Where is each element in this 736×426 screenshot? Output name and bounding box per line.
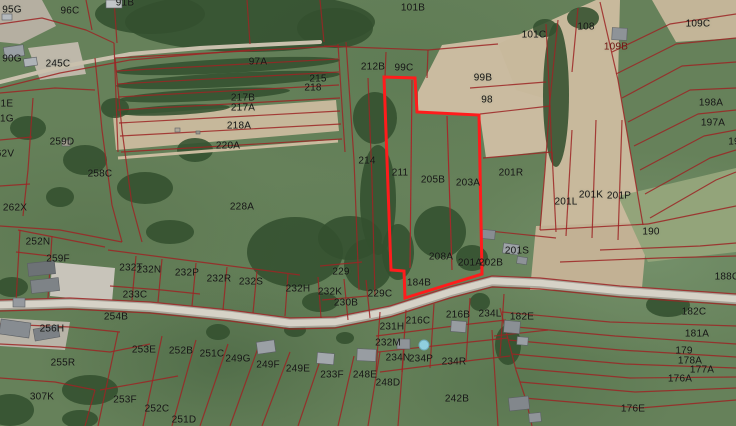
tree-clump <box>63 145 107 175</box>
tree-clump <box>318 216 382 260</box>
parcel-boundary-line <box>223 267 227 310</box>
parcel-boundary-line <box>0 344 150 352</box>
parcel-boundary-line <box>628 88 736 122</box>
building <box>30 278 59 294</box>
parcel-boundary-line <box>634 110 736 146</box>
swimming-pool <box>419 340 429 350</box>
parcel-boundary-line <box>262 352 290 426</box>
building <box>517 256 528 264</box>
parcel-boundary-line <box>512 354 736 368</box>
parcel-boundary-line <box>172 340 196 426</box>
parcel-boundary-line <box>508 340 736 357</box>
tree-clump <box>101 98 129 118</box>
parcel-boundary-line <box>86 0 92 30</box>
building <box>106 0 122 8</box>
parcel-boundary-line <box>516 368 736 378</box>
parcel-boundary-line <box>230 348 258 426</box>
parcel-boundary-line <box>132 256 136 300</box>
parcel-boundary-line <box>192 263 196 306</box>
parcel-boundary-line <box>376 320 506 336</box>
tree-clump <box>62 410 98 426</box>
parcel-boundary-line <box>298 355 322 426</box>
field-patch <box>0 0 56 44</box>
building <box>3 45 24 59</box>
tree-clump <box>0 277 28 297</box>
parcel-boundary-line <box>0 184 30 186</box>
building <box>357 349 377 362</box>
tree-clump <box>470 293 490 311</box>
parcel-boundary-line <box>502 312 736 326</box>
building <box>196 131 200 134</box>
tree-clump <box>117 172 173 204</box>
field-patch <box>50 262 115 302</box>
parcel-boundary-line <box>110 286 200 294</box>
parcel-boundary-line <box>622 62 736 98</box>
building <box>256 340 275 354</box>
building <box>482 229 496 239</box>
building <box>2 14 12 20</box>
parcel-boundary-line <box>158 259 162 302</box>
building <box>317 352 335 364</box>
parcel-boundary-line <box>23 98 33 216</box>
building <box>504 320 521 333</box>
parcel-boundary-line <box>385 52 386 77</box>
parcel-boundary-line <box>0 88 95 93</box>
building <box>13 298 25 307</box>
parcel-boundary-line <box>520 382 736 392</box>
parcel-boundary-line <box>253 271 257 313</box>
field-patch <box>652 0 736 42</box>
tree-clump <box>567 7 599 29</box>
building <box>502 243 519 255</box>
parcel-boundary-line <box>18 230 105 247</box>
building <box>62 140 70 146</box>
parcel-boundary-line <box>430 304 434 368</box>
parcel-boundary-line <box>505 326 736 344</box>
parcel-boundary-line <box>466 298 470 362</box>
building <box>451 320 467 332</box>
tree-clump <box>414 206 466 258</box>
building <box>517 337 529 346</box>
tree-clump <box>10 116 46 140</box>
building <box>612 28 628 41</box>
tree-clump <box>62 375 118 405</box>
building <box>24 57 38 67</box>
parcel-boundary-line <box>344 279 348 320</box>
aerial-map-view[interactable]: 95G96C91B90G245C61E61G62V259D258C262X97A… <box>0 0 736 426</box>
parcel-boundary-line <box>338 356 354 426</box>
parcel-map-svg <box>0 0 736 426</box>
parcel-boundary-line <box>0 226 122 242</box>
building <box>27 261 55 277</box>
building <box>529 412 542 422</box>
tree-clump <box>46 187 74 207</box>
building <box>397 339 410 349</box>
parcel-boundary-line <box>200 344 228 426</box>
building <box>175 128 180 132</box>
tree-clump <box>533 19 557 37</box>
building <box>508 396 529 411</box>
parcel-boundary-line <box>368 352 380 426</box>
parcel-boundary-line <box>16 252 50 256</box>
parcel-boundary-line <box>524 398 736 408</box>
tree-clump <box>353 92 397 144</box>
tree-clump <box>206 324 230 340</box>
tree-clump <box>0 394 34 426</box>
tree-clump <box>146 220 194 244</box>
parcel-boundary-line <box>380 356 510 372</box>
tree-clump <box>336 332 354 344</box>
